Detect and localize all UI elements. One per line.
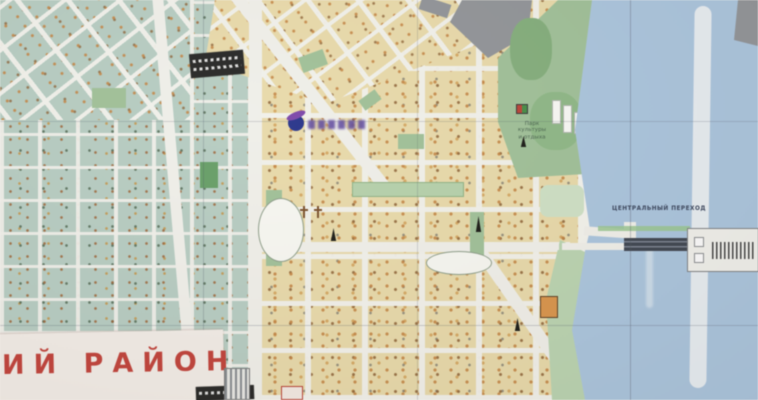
bridge-green-band <box>598 226 690 231</box>
map-canvas: Парк культуры и отдыха ЦЕНТРАЛЬНЫЙ ПЕРЕХ… <box>0 0 758 400</box>
park-strip-boulevard <box>352 182 464 197</box>
shoal <box>646 248 653 308</box>
dam-cell-1 <box>694 237 704 247</box>
shore-park-grove-1 <box>510 18 552 80</box>
graticule-v2 <box>417 0 418 400</box>
bridge-label: ЦЕНТРАЛЬНЫЙ ПЕРЕХОД <box>612 205 706 212</box>
church-icon-1 <box>299 206 308 218</box>
landmark-building <box>540 296 558 318</box>
dam-hatch <box>712 242 756 259</box>
attraction-icon <box>516 104 528 114</box>
map-photo: Парк культуры и отдыха ЦЕНТРАЛЬНЫЙ ПЕРЕХ… <box>0 0 758 400</box>
graticule-v3 <box>630 0 631 400</box>
church-icon-2 <box>313 206 322 218</box>
shore-beach-strip <box>540 185 584 217</box>
causeway-segment <box>545 243 559 250</box>
advert-text-blur <box>308 120 368 129</box>
district-label: ИЙ РАЙОН <box>2 346 238 381</box>
graticule-h2 <box>0 325 758 326</box>
banner-text-line-2 <box>193 64 241 71</box>
park-label: Парк культуры и отдыха <box>506 120 557 140</box>
causeway-left <box>562 243 626 250</box>
park-building-2 <box>563 105 572 133</box>
avenue-zone-divider <box>249 0 262 400</box>
stadium-oval-central <box>426 251 492 275</box>
map-banner-dark <box>189 50 245 79</box>
dam-cell-2 <box>694 253 704 263</box>
red-kiosk <box>281 386 303 400</box>
striped-building <box>224 368 250 400</box>
park-patch-2 <box>398 134 424 149</box>
dam-structure <box>687 228 758 272</box>
park-patch-teal-zone <box>92 88 126 108</box>
banner-text-line-1 <box>193 56 241 63</box>
graticule-h1 <box>0 121 758 122</box>
stadium-oval-west <box>258 198 304 262</box>
bridge-deck <box>624 238 688 251</box>
